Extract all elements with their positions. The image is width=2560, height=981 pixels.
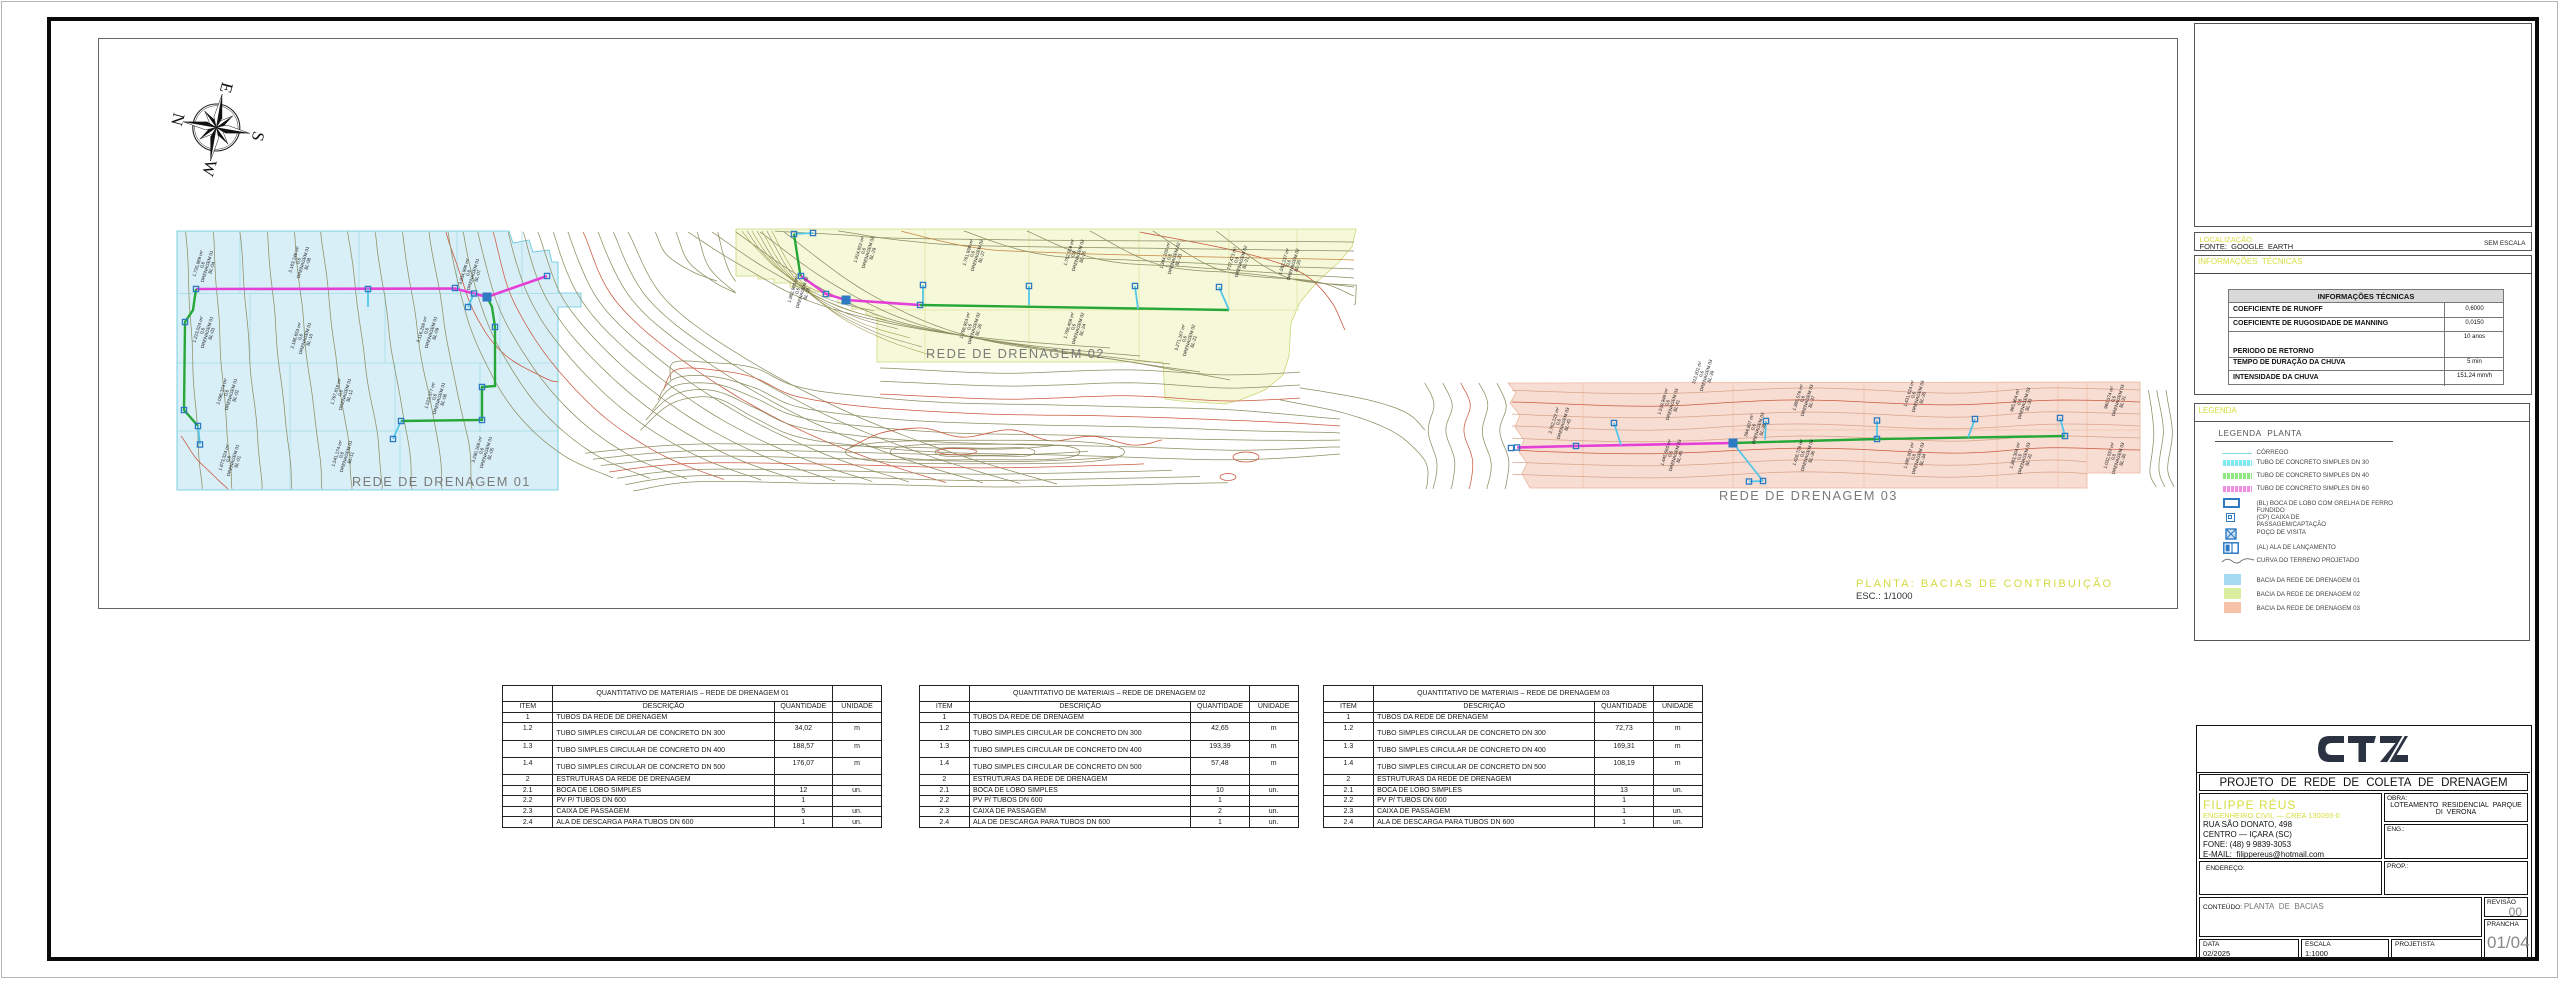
svg-text:E: E — [216, 80, 237, 95]
svg-text:ESC.: 1/1000: ESC.: 1/1000 — [1856, 591, 1913, 602]
svg-text:N: N — [167, 111, 189, 128]
svg-text:REDE DE DRENAGEM 03: REDE DE DRENAGEM 03 — [1719, 488, 1898, 503]
svg-text:REDE DE DRENAGEM 02: REDE DE DRENAGEM 02 — [926, 346, 1105, 361]
svg-text:W: W — [198, 158, 221, 179]
svg-text:PLANTA: BACIAS DE CONTRIBUIÇÃO: PLANTA: BACIAS DE CONTRIBUIÇÃO — [1856, 577, 2113, 590]
svg-text:REDE DE DRENAGEM 01: REDE DE DRENAGEM 01 — [352, 474, 531, 489]
svg-text:S: S — [248, 129, 269, 143]
